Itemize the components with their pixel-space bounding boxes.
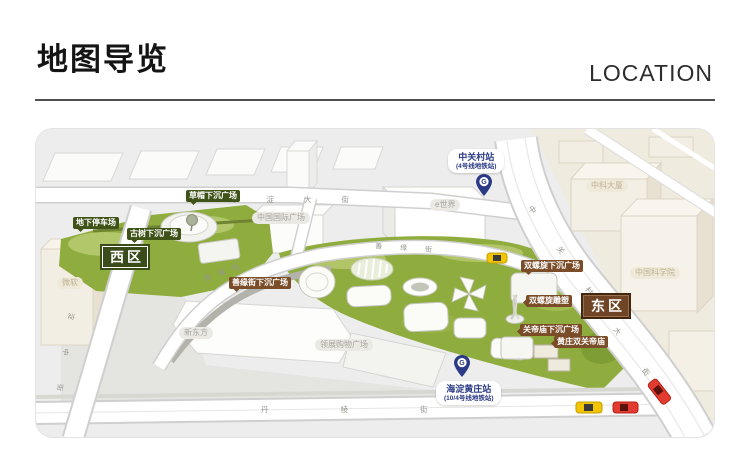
building-label-china-intl-plaza: 中国国际广场 <box>252 212 310 224</box>
taxi-icon <box>487 253 507 263</box>
station-name: 海淀黄庄站 <box>444 384 493 395</box>
label-shanyuan-street-plaza: 善缘街下沉广场 <box>229 277 291 289</box>
taxi-icon <box>576 402 602 413</box>
station-line: (10/4号线地铁站) <box>444 395 493 402</box>
building-label-e-world: e世界 <box>430 199 460 211</box>
label-double-helix-plaza: 双螺旋下沉广场 <box>521 260 583 272</box>
building-label-link-plaza: 领展购物广场 <box>315 339 373 351</box>
header-divider <box>35 99 715 101</box>
road-name-danling-street: 丹棱街 <box>261 404 500 414</box>
label-ancient-tree-plaza: 古树下沉广场 <box>127 228 181 240</box>
metro-pin-icon: G <box>476 174 492 196</box>
station-label-zhongguancun: 中关村站 (4号线地铁站) <box>448 149 504 173</box>
label-double-helix-sculpture: 双螺旋雕塑 <box>526 295 572 307</box>
station-name: 中关村站 <box>456 152 496 163</box>
zone-badge-east: 东区 <box>583 295 629 317</box>
metro-pin-icon: G <box>454 355 470 377</box>
building-label-microsoft: 微软 <box>57 277 83 289</box>
label-underground-parking: 地下停车场 <box>73 217 119 229</box>
zone-badge-west: 西区 <box>102 246 148 268</box>
building-label-cas: 中国科学院 <box>630 267 680 279</box>
metro-logo-glyph: G <box>459 360 465 367</box>
station-label-haidianhuangzhuang: 海淀黄庄站 (10/4号线地铁站) <box>436 381 501 405</box>
metro-logo-glyph: G <box>481 179 487 186</box>
red-car-icon <box>613 402 638 413</box>
building-label-new-oriental: 新东方 <box>179 327 213 339</box>
guandi-plaza-structure <box>501 337 533 359</box>
map-illustration: 海淀大街 中关村大街 海淀中街 丹棱街 善缘街 善缘街 <box>36 129 715 438</box>
label-huangzhuang-temple: 黄庄双关帝庙 <box>554 336 608 348</box>
road-name-haidian-avenue: 海淀大街 <box>229 194 379 204</box>
station-line: (4号线地铁站) <box>456 163 496 170</box>
label-straw-hat-plaza: 草帽下沉广场 <box>186 190 240 202</box>
page-title-en: LOCATION <box>589 62 713 85</box>
map-panel: 海淀大街 中关村大街 海淀中街 丹棱街 善缘街 善缘街 <box>35 128 715 438</box>
page-title: 地图导览 <box>37 44 169 75</box>
label-guandi-temple-plaza: 关帝庙下沉广场 <box>520 324 582 336</box>
building-label-zhongke-tower: 中科大厦 <box>586 180 628 192</box>
